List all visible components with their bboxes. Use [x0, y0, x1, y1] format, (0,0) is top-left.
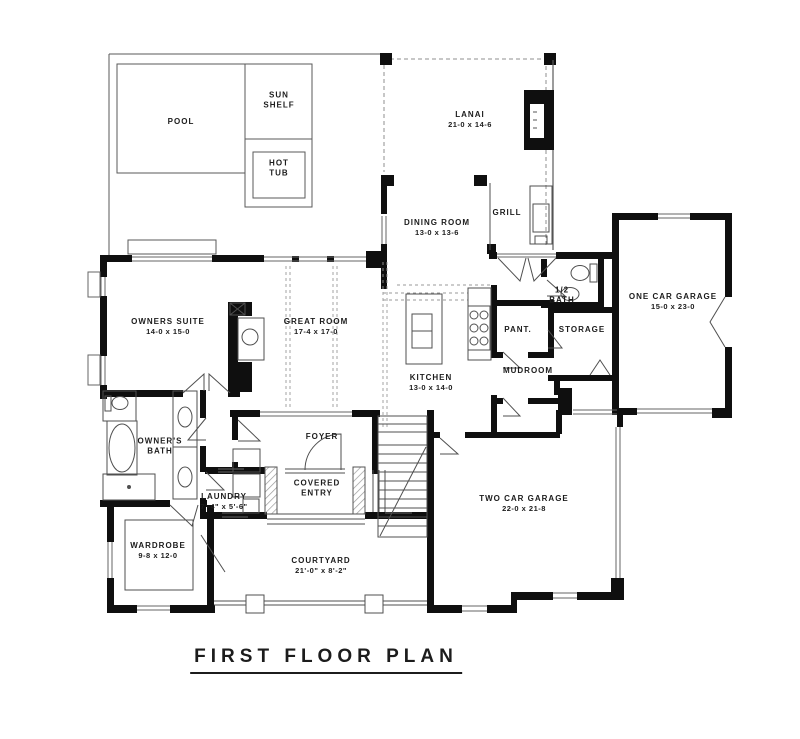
room-label-courtyard: COURTYARD21'-0" x 8'-2"	[291, 556, 350, 576]
walls	[100, 175, 732, 613]
room-label-hot-tub: HOT TUB	[262, 159, 296, 180]
room-label-foyer: FOYER	[306, 432, 339, 442]
room-label-half-bath: 1/2 BATH	[547, 286, 577, 307]
fixtures	[103, 183, 725, 613]
room-label-storage: STORAGE	[559, 325, 605, 335]
page-title: FIRST FLOOR PLAN	[190, 646, 462, 674]
floor-plan-canvas: POOL SUN SHELF HOT TUB LANAI21-0 x 14-6 …	[0, 0, 800, 739]
room-label-grill: GRILL	[493, 208, 522, 218]
column-icon	[365, 595, 383, 613]
room-label-pantry: PANT.	[504, 325, 532, 335]
room-label-lanai: LANAI21-0 x 14-6	[448, 110, 492, 130]
bifold-door-icon	[590, 360, 610, 375]
ceiling-lines	[286, 262, 491, 430]
toilet-icon	[112, 397, 128, 410]
entry-steps	[267, 514, 365, 524]
room-label-sun-shelf: SUN SHELF	[258, 91, 300, 112]
fireplace-icon	[524, 90, 554, 150]
pool-patio	[109, 54, 384, 256]
door-swings	[170, 258, 565, 526]
room-label-two-car-garage: TWO CAR GARAGE22-0 x 21-8	[479, 494, 569, 514]
room-label-owners-bath: OWNER'S BATH	[132, 437, 188, 458]
room-label-wardrobe: WARDROBE9-8 x 12-0	[130, 541, 186, 561]
room-label-dining-room: DINING ROOM13-0 x 13-6	[404, 218, 470, 238]
room-label-covered-entry: COVERED ENTRY	[284, 479, 350, 500]
room-label-kitchen: KITCHEN13-0 x 14-0	[409, 373, 453, 393]
room-label-owners-suite: OWNERS SUITE14-0 x 15-0	[131, 317, 205, 337]
toilet-icon	[571, 264, 597, 282]
room-label-great-room: GREAT ROOM17-4 x 17-0	[284, 317, 349, 337]
floor-plan-drawing	[0, 0, 800, 739]
range-icon	[468, 288, 491, 360]
room-label-laundry: LAUNDRY7'-4" x 5'-6"	[200, 492, 247, 512]
room-label-pool: POOL	[168, 117, 195, 127]
kitchen-island-icon	[406, 294, 442, 364]
room-label-one-car-garage: ONE CAR GARAGE15-0 x 23-0	[629, 292, 717, 312]
column-icon	[246, 595, 264, 613]
room-label-mudroom: MUDROOM	[503, 366, 553, 376]
